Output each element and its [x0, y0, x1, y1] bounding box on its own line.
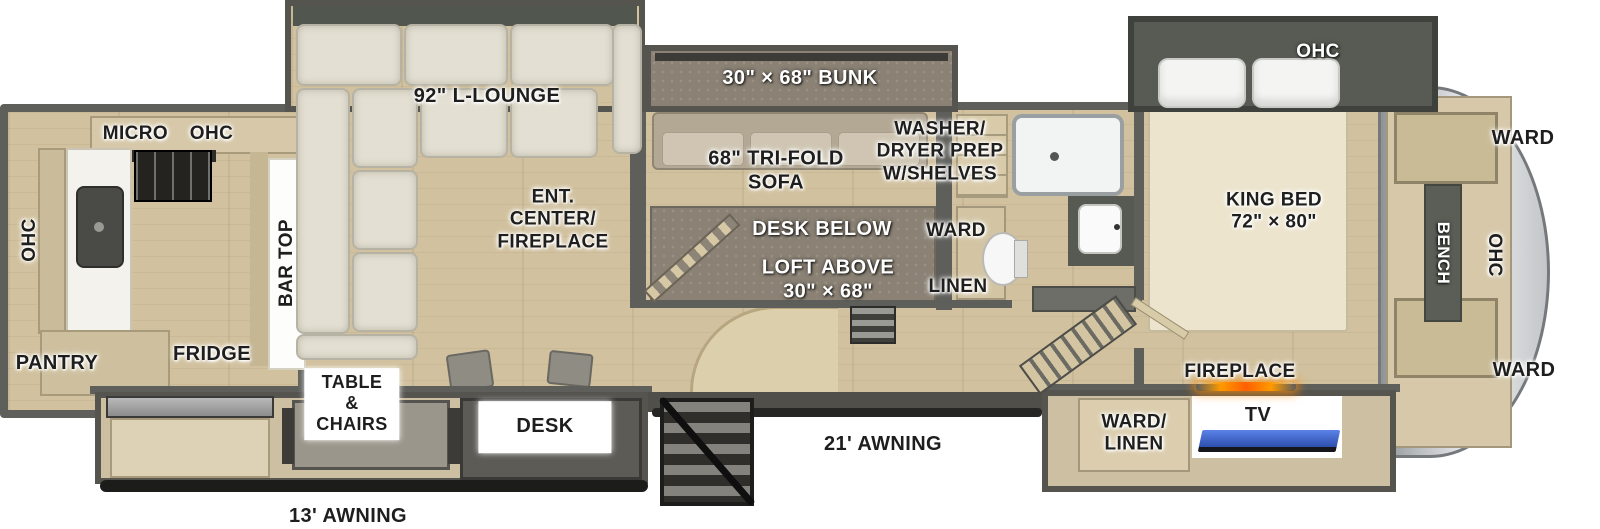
stove-icon: [134, 150, 212, 202]
sink-drain-dot: [94, 222, 104, 232]
fridge-body: [110, 418, 270, 478]
label-king-bed: KING BED 72" × 80": [1226, 190, 1322, 235]
label-ward-linen: WARD/ LINEN: [1101, 412, 1166, 457]
label-kitchen-ohc: OHC: [19, 218, 41, 261]
label-rear-ward-top: WARD: [1492, 127, 1555, 151]
rear-cabinet-top: [1394, 112, 1498, 184]
wall-bath-bottom: [952, 300, 1012, 308]
toilet-tank: [1014, 240, 1028, 278]
label-tv: TV: [1245, 404, 1271, 428]
bar-backing: [250, 152, 268, 366]
label-micro-ohc: MICRO OHC: [103, 123, 233, 145]
lounge-seat: [352, 88, 418, 168]
label-washer-dryer: WASHER/ DRYER PREP W/SHELVES: [877, 118, 1004, 185]
lounge-arm-bottom: [296, 334, 418, 360]
cabinet-left-strip: [38, 148, 66, 334]
lounge-back-left: [296, 88, 350, 334]
label-bunk: 30" × 68" BUNK: [722, 67, 877, 91]
label-awning-13: 13' AWNING: [289, 505, 407, 529]
label-table-chairs: TABLE & CHAIRS: [304, 368, 399, 440]
bed-pillow: [1252, 58, 1340, 108]
label-tri-fold-sofa: 68" TRI-FOLD SOFA: [708, 147, 843, 194]
label-linen-mid: LINEN: [929, 276, 988, 298]
label-desk: DESK: [478, 401, 611, 453]
label-rear-ward-bottom: WARD: [1493, 359, 1556, 383]
floorplan-canvas: MICRO OHC OHC BAR TOP PANTRY FRIDGE 92" …: [0, 0, 1600, 529]
dinette-chair: [448, 408, 460, 464]
wall-bedroom-left: [1134, 108, 1144, 300]
lounge-back-cushion: [510, 24, 614, 86]
label-rear-bench: BENCH: [1433, 222, 1453, 284]
label-l-lounge: 92" L-LOUNGE: [414, 85, 561, 109]
label-desk-below: DESK BELOW: [752, 218, 892, 242]
faucet-dot: [1114, 224, 1120, 230]
lounge-slide-roof: [293, 6, 637, 26]
dinette-chair: [282, 408, 294, 464]
lounge-seat: [352, 170, 418, 250]
awning-13-rod: [100, 480, 648, 492]
fridge-top: [106, 396, 274, 418]
lounge-back-cushion: [296, 24, 402, 86]
tv-screen-icon: [1198, 430, 1341, 452]
label-rear-ohc: OHC: [1483, 233, 1505, 276]
label-awning-21: 21' AWNING: [824, 433, 942, 457]
desk-chair: [546, 350, 593, 388]
fireplace-glow: [1196, 382, 1296, 391]
label-loft-above: LOFT ABOVE 30" × 68": [762, 256, 894, 303]
bunk-slide-roof: [655, 53, 948, 61]
lounge-back-cushion: [404, 24, 508, 86]
label-bar-top: BAR TOP: [276, 219, 298, 307]
loft-steps-icon: [850, 306, 896, 344]
lounge-arm-right: [612, 24, 642, 154]
label-bedroom-ohc: OHC: [1296, 41, 1339, 63]
label-ward-mid: WARD: [926, 220, 986, 242]
label-fridge: FRIDGE: [173, 343, 251, 367]
label-ent-center: ENT. CENTER/ FIREPLACE: [497, 186, 608, 253]
bed-pillow: [1158, 58, 1246, 108]
shower-icon: [1012, 114, 1124, 196]
wall-bedroom-left-stub: [1134, 348, 1144, 386]
lounge-seat: [352, 252, 418, 332]
label-fireplace: FIREPLACE: [1184, 361, 1295, 383]
shower-drain-dot: [1050, 152, 1059, 161]
label-pantry: PANTRY: [16, 352, 98, 376]
